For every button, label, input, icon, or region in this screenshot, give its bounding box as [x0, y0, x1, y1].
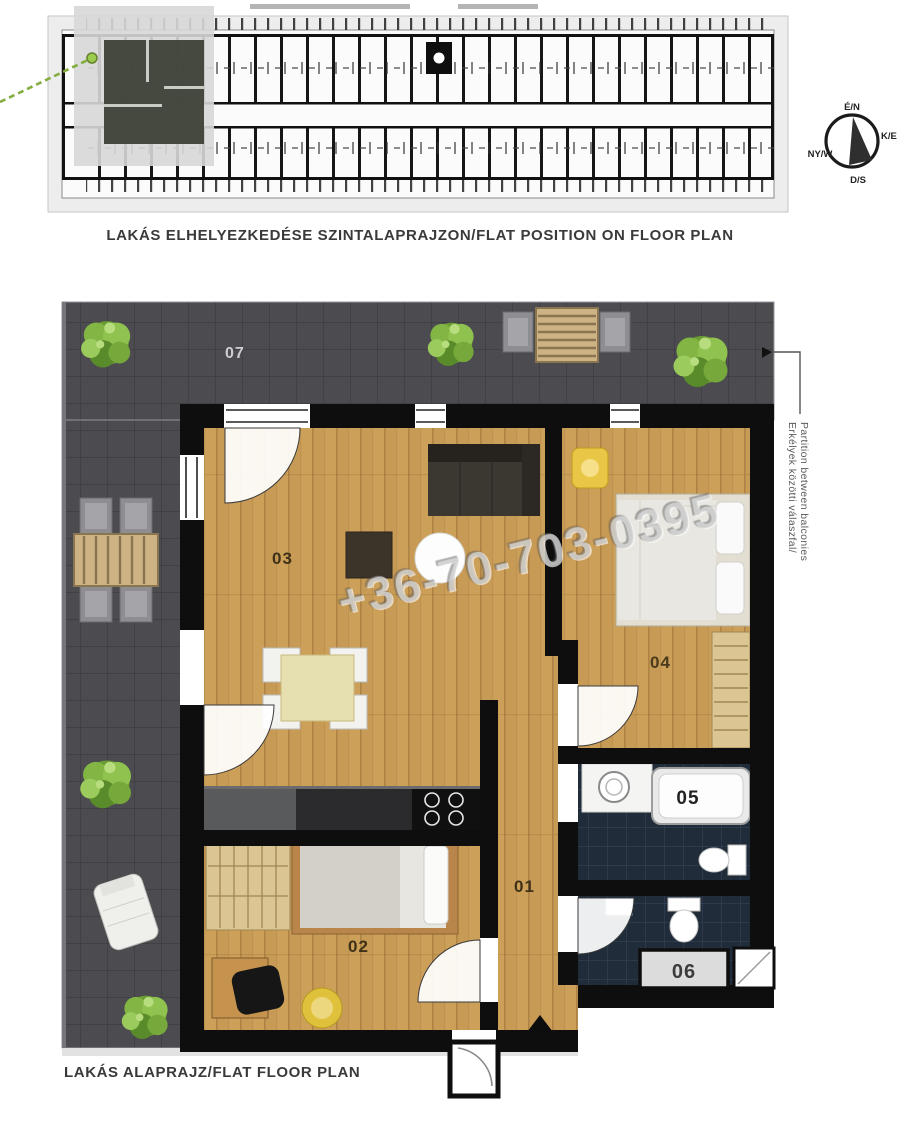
compass-north-label: É/N: [844, 102, 860, 113]
wc-toilet: [668, 898, 700, 942]
building-overview-plan: [46, 4, 794, 222]
bathtub: [652, 768, 750, 824]
compass-west-label: NY/W: [808, 149, 833, 160]
label-bedroom1: 04: [650, 653, 671, 672]
kitchen-counter: [204, 786, 492, 832]
exterior-cut: [578, 1008, 750, 1032]
label-terrace: 07: [225, 345, 245, 362]
sofa: [428, 444, 540, 516]
label-wc: 06: [672, 961, 696, 983]
plan-caption: LAKÁS ALAPRAJZ/FLAT FLOOR PLAN: [64, 1064, 360, 1081]
coffee-table: [346, 532, 392, 578]
locator-dot: [87, 53, 97, 63]
flat-floor-plan: 07 03 04 01 02 05 06 Erkélyek közötti vá…: [0, 296, 900, 1108]
vanity-sink: [582, 764, 652, 812]
wardrobe: [712, 632, 750, 748]
compass-rose: É/N K/E NY/W D/S: [806, 94, 898, 188]
label-bedroom2: 02: [348, 937, 369, 956]
balcony-note-en: Partition between balconies: [798, 422, 810, 561]
label-hallway: 01: [514, 877, 535, 896]
flat-locator-callout: [0, 40, 120, 112]
wardrobe-2: [206, 838, 290, 930]
pouf: [302, 988, 342, 1028]
yellow-armchair: [572, 448, 608, 488]
compass-east-label: K/E: [881, 131, 897, 142]
label-living: 03: [272, 549, 293, 568]
compass-south-label: D/S: [850, 175, 866, 186]
overview-caption: LAKÁS ELHELYEZKEDÉSE SZINTALAPRAJZON/FLA…: [0, 227, 840, 244]
label-bathroom: 05: [676, 788, 699, 809]
floorplan-page: { "overview": { "caption": "LAKÁS ELHELY…: [0, 0, 900, 1128]
balcony-note-hu: Erkélyek közötti válaszfal/: [786, 422, 798, 553]
elevator-core-icon: [426, 42, 452, 74]
single-bed: [292, 836, 458, 934]
entrance-door: [450, 1042, 498, 1096]
corner-door-box: [734, 948, 774, 988]
locator-dashed-line: [0, 58, 92, 102]
double-bed: [616, 494, 750, 626]
truncated-label-bar: [250, 4, 538, 9]
round-rug: [415, 533, 465, 583]
